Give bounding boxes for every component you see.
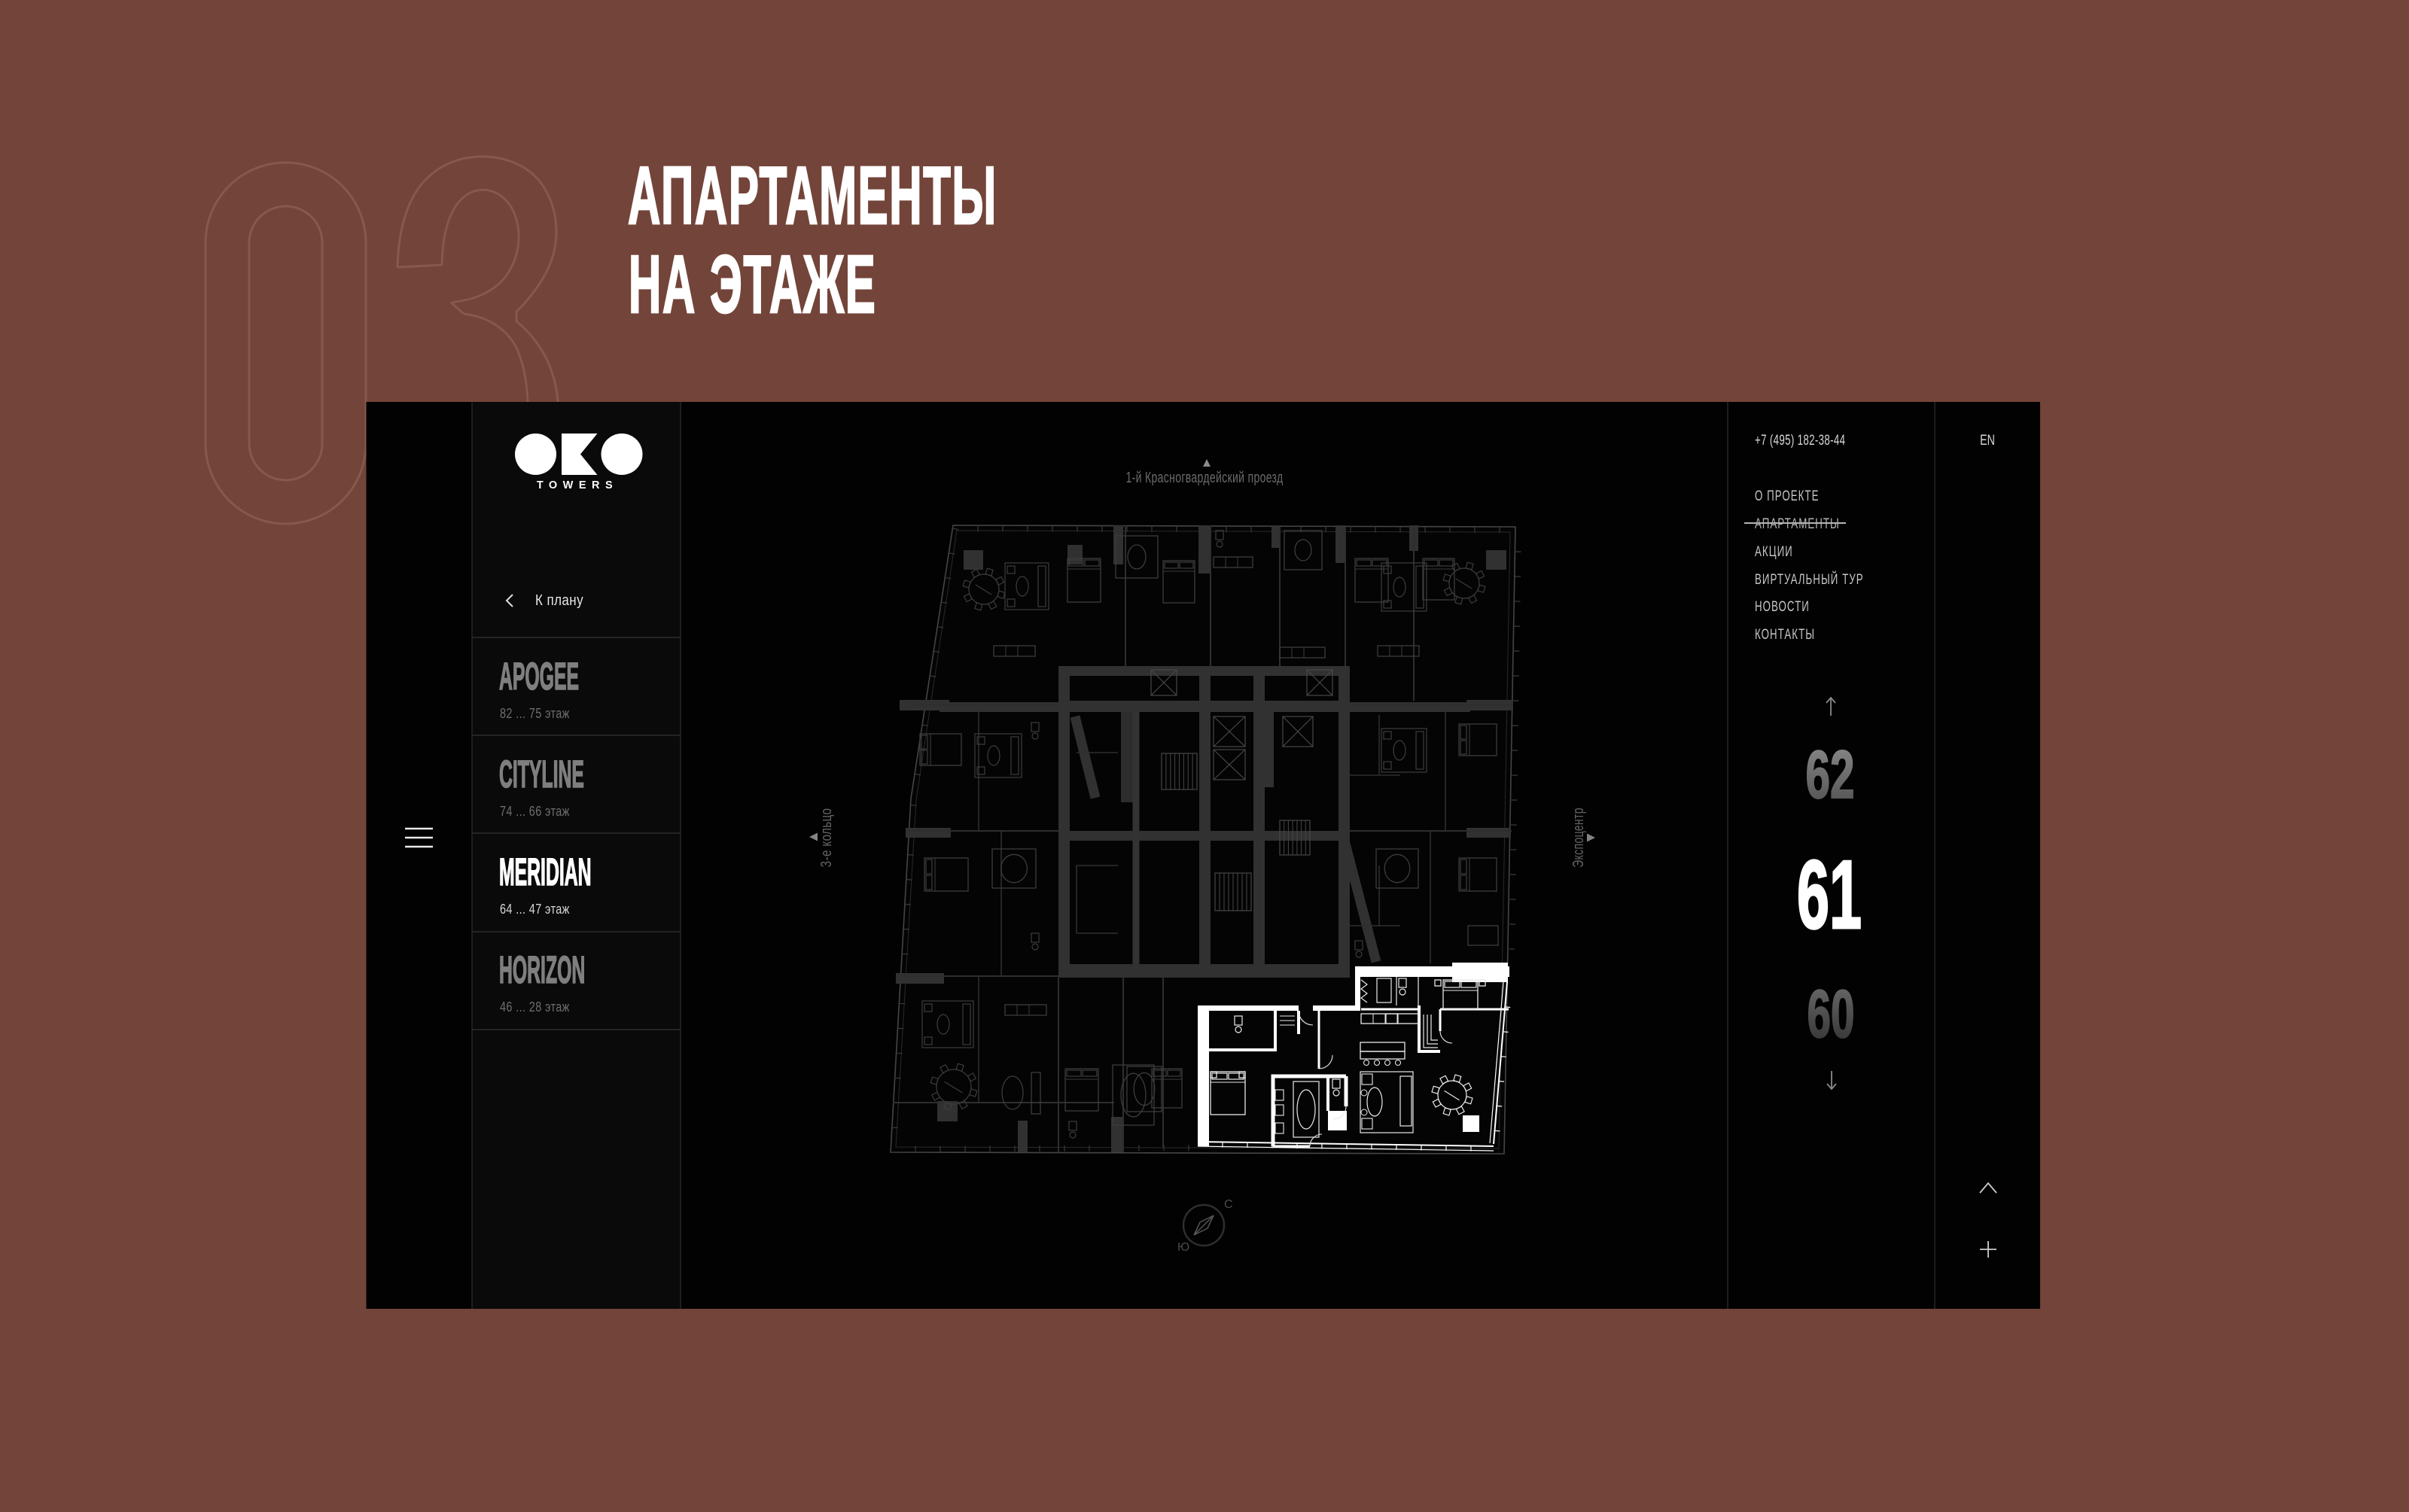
svg-text:АПАРТАМЕНТЫ: АПАРТАМЕНТЫ xyxy=(628,149,997,242)
svg-text:+7 (495) 182-38-44: +7 (495) 182-38-44 xyxy=(1755,433,1845,449)
svg-text:CITYLINE: CITYLINE xyxy=(499,753,584,796)
svg-text:О ПРОЕКТЕ: О ПРОЕКТЕ xyxy=(1755,488,1819,504)
svg-text:Экспоцентр: Экспоцентр xyxy=(1569,808,1586,868)
svg-text:НА ЭТАЖЕ: НА ЭТАЖЕ xyxy=(629,238,876,330)
svg-text:TOWERS: TOWERS xyxy=(537,479,618,491)
svg-text:Ю: Ю xyxy=(1177,1241,1189,1254)
svg-text:ВИРТУАЛЬНЫЙ ТУР: ВИРТУАЛЬНЫЙ ТУР xyxy=(1755,571,1864,588)
svg-text:82 ... 75 этаж: 82 ... 75 этаж xyxy=(500,705,570,721)
svg-text:КОНТАКТЫ: КОНТАКТЫ xyxy=(1755,627,1815,643)
svg-text:EN: EN xyxy=(1980,432,1995,448)
svg-text:АПАРТАМЕНТЫ: АПАРТАМЕНТЫ xyxy=(1755,516,1840,532)
svg-text:APOGEE: APOGEE xyxy=(499,656,579,698)
svg-text:74 ... 66 этаж: 74 ... 66 этаж xyxy=(500,803,570,819)
svg-text:3-е кольцо: 3-е кольцо xyxy=(818,808,835,868)
svg-text:С: С xyxy=(1224,1198,1233,1211)
svg-text:MERIDIAN: MERIDIAN xyxy=(499,851,592,893)
svg-text:62: 62 xyxy=(1805,737,1854,813)
svg-text:64 ... 47 этаж: 64 ... 47 этаж xyxy=(500,901,570,917)
svg-text:61: 61 xyxy=(1797,841,1862,949)
svg-text:1-й Красногвардейский проезд: 1-й Красногвардейский проезд xyxy=(1125,468,1283,485)
svg-text:46 ... 28 этаж: 46 ... 28 этаж xyxy=(500,999,570,1015)
svg-text:60: 60 xyxy=(1807,976,1854,1052)
svg-text:АКЦИИ: АКЦИИ xyxy=(1755,544,1793,560)
svg-text:HORIZON: HORIZON xyxy=(499,949,585,991)
svg-text:НОВОСТИ: НОВОСТИ xyxy=(1755,599,1810,615)
svg-text:К плану: К плану xyxy=(535,592,583,609)
